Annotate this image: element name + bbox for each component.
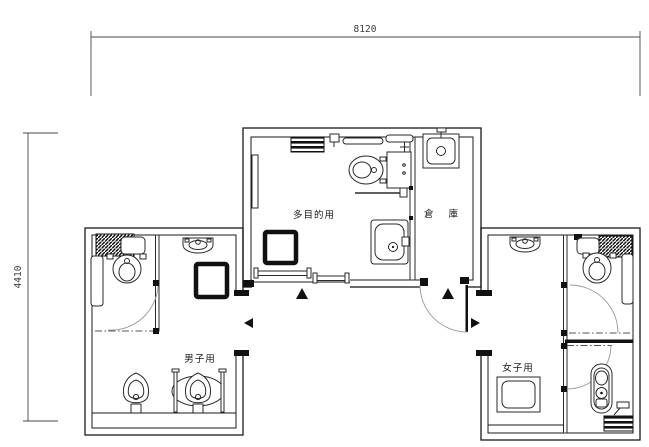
wall-panel-symbol (91, 256, 103, 306)
floor-plan-canvas: 8120 4410 (0, 0, 649, 447)
wall-openings (234, 278, 490, 350)
multipurpose-room: 多目的用 (252, 134, 413, 283)
wall-hung-basin-symbol (183, 238, 213, 253)
flush-valve-symbol (614, 402, 629, 415)
entrance-markers (244, 288, 480, 328)
door-stop (409, 186, 413, 190)
room-label-multipurpose: 多目的用 (293, 209, 335, 221)
wall-panel-symbol (622, 254, 633, 304)
mens-room: 男子用 (91, 234, 236, 413)
lavatory-symbol (371, 220, 409, 264)
squat-toilet-symbol (591, 364, 612, 413)
room-label-storage: 倉 庫 (424, 208, 464, 220)
womens-block-walls (481, 228, 640, 440)
dimension-left: 4410 (13, 133, 58, 421)
shelf-hatch-symbol (291, 137, 324, 152)
accessible-toilet-symbol (349, 142, 411, 188)
wall-hung-basin-symbol (510, 237, 540, 252)
urinal-with-grab-bars-symbol (172, 369, 226, 413)
floor-box-symbol (196, 264, 227, 297)
storage-swing-door-symbol (420, 285, 468, 332)
entrance-arrow-left-mens (244, 318, 253, 328)
room-label-mens: 男子用 (184, 354, 216, 365)
step-hatch-symbol (604, 416, 633, 431)
grab-bar-symbol (355, 188, 407, 197)
dimension-left-value: 4410 (13, 265, 24, 288)
urinal-symbol (124, 373, 149, 413)
dimension-top: 8120 (91, 24, 640, 96)
wall-fitting-symbol (330, 134, 413, 147)
floor-plan-page: 8120 4410 (0, 0, 649, 447)
entrance-arrow-up-multipurpose (296, 288, 308, 299)
storage-room: 倉 庫 (420, 128, 468, 332)
entrance-arrow-up-storage (442, 288, 454, 299)
door-stop (409, 216, 413, 220)
womens-room: 女子用 (488, 234, 633, 433)
floor-box-symbol (497, 377, 540, 412)
fold-down-bed-symbol (252, 155, 258, 208)
room-label-womens: 女子用 (502, 362, 534, 374)
dimension-top-value: 8120 (354, 24, 377, 35)
entrance-arrow-right-womens (471, 318, 480, 328)
mop-sink-symbol (423, 128, 459, 168)
floor-box-symbol (265, 232, 296, 263)
